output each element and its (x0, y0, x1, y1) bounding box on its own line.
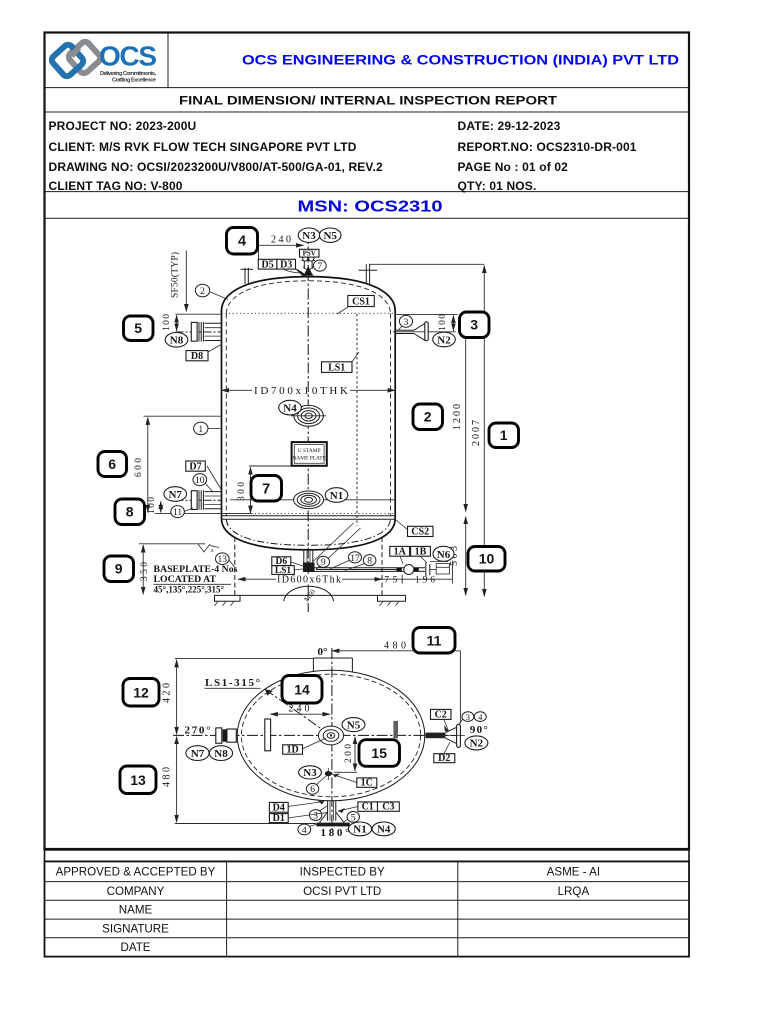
svg-text:2: 2 (200, 287, 205, 297)
svg-text:LS1: LS1 (275, 566, 292, 576)
svg-text:9: 9 (321, 558, 326, 568)
svg-text:DRAWING NO: OCSI/2023200U/V800: DRAWING NO: OCSI/2023200U/V800/AT-500/GA… (49, 160, 383, 174)
svg-text:D1: D1 (273, 813, 285, 824)
svg-text:480: 480 (162, 767, 173, 787)
svg-text:4: 4 (478, 712, 483, 722)
svg-text:3: 3 (470, 317, 478, 333)
svg-text:6: 6 (310, 785, 315, 795)
svg-text:420: 420 (162, 683, 173, 703)
svg-text:12: 12 (133, 685, 149, 701)
svg-text:N2: N2 (470, 738, 484, 750)
svg-text:14: 14 (294, 682, 310, 698)
svg-text:APPROVED & ACCEPTED BY: APPROVED & ACCEPTED BY (56, 866, 216, 879)
svg-text:MSN: OCS2310: MSN: OCS2310 (298, 199, 443, 216)
svg-text:7: 7 (317, 262, 322, 272)
svg-text:QTY: 01 NOS.: QTY: 01 NOS. (458, 179, 537, 193)
svg-text:CS2: CS2 (411, 527, 429, 538)
svg-text:1B: 1B (415, 546, 427, 557)
svg-text:3: 3 (404, 318, 409, 328)
svg-text:4: 4 (302, 826, 307, 836)
svg-text:480: 480 (384, 640, 406, 651)
svg-text:N8: N8 (214, 748, 228, 760)
svg-text:N3: N3 (302, 230, 316, 242)
svg-text:Crafting Excellence: Crafting Excellence (112, 78, 156, 84)
svg-text:300: 300 (237, 482, 247, 501)
svg-text:N1: N1 (353, 824, 366, 836)
svg-text:8: 8 (126, 504, 134, 520)
svg-text:9: 9 (115, 561, 123, 577)
svg-text:0°: 0° (318, 646, 328, 658)
svg-text:REPORT.NO: OCS2310-DR-001: REPORT.NO: OCS2310-DR-001 (458, 140, 637, 154)
svg-text:D5: D5 (261, 259, 273, 270)
svg-text:OCSI PVT LTD: OCSI PVT LTD (303, 885, 381, 898)
svg-text:5: 5 (351, 813, 356, 823)
svg-text:NAME: NAME (119, 904, 153, 917)
svg-text:45°,135°,225°,315°: 45°,135°,225°,315° (154, 585, 225, 595)
svg-text:LRQA: LRQA (558, 885, 590, 898)
svg-text:1A: 1A (394, 546, 407, 557)
svg-text:N4: N4 (377, 824, 391, 836)
svg-text:100: 100 (438, 314, 448, 331)
svg-text:N1: N1 (330, 490, 343, 502)
svg-text:100: 100 (162, 314, 172, 331)
svg-text:NAME PLATE: NAME PLATE (293, 456, 327, 462)
svg-text:6: 6 (108, 456, 116, 472)
svg-text:LOCATED AT: LOCATED AT (154, 574, 217, 585)
svg-text:N6: N6 (437, 549, 451, 561)
svg-text:17: 17 (350, 554, 360, 564)
svg-text:600: 600 (134, 458, 144, 477)
svg-text:FINAL DIMENSION/ INTERNAL INSP: FINAL DIMENSION/ INTERNAL INSPECTION REP… (179, 94, 558, 108)
svg-text:N4: N4 (283, 402, 297, 414)
svg-text:2: 2 (424, 409, 432, 425)
svg-text:1: 1 (500, 427, 508, 443)
svg-text:350: 350 (140, 562, 150, 581)
svg-text:N7: N7 (191, 748, 205, 760)
svg-text:OCS ENGINEERING & CONSTRUCTION: OCS ENGINEERING & CONSTRUCTION (INDIA) P… (242, 52, 679, 68)
svg-text:C3: C3 (382, 802, 394, 813)
svg-text:11: 11 (427, 632, 442, 648)
svg-text:4: 4 (238, 234, 246, 250)
svg-text:13: 13 (130, 772, 146, 788)
svg-text:COMPANY: COMPANY (107, 885, 165, 898)
svg-text:C2: C2 (435, 710, 447, 721)
svg-text:240: 240 (271, 235, 291, 246)
svg-text:N2: N2 (437, 334, 451, 346)
svg-text:PAGE No : 01 of 02: PAGE No : 01 of 02 (458, 160, 569, 174)
svg-text:C1: C1 (362, 802, 374, 813)
svg-text:1: 1 (198, 425, 203, 435)
svg-text:3: 3 (466, 712, 470, 722)
svg-text:13: 13 (218, 555, 228, 565)
svg-text:SIGNATURE: SIGNATURE (102, 922, 169, 935)
svg-text:Delivering Commitments,: Delivering Commitments, (100, 71, 156, 77)
svg-text:D4: D4 (273, 802, 285, 813)
svg-text:PROJECT NO: 2023-200U: PROJECT NO: 2023-200U (49, 119, 197, 133)
svg-text:90°: 90° (470, 724, 488, 736)
svg-text:D7: D7 (189, 461, 201, 472)
svg-text:INSPECTED BY: INSPECTED BY (300, 866, 385, 879)
svg-text:11: 11 (173, 508, 182, 518)
svg-text:LS1-315°: LS1-315° (205, 677, 260, 689)
svg-text:LS1: LS1 (328, 362, 345, 373)
svg-text:CLIENT: M/S RVK FLOW TECH SING: CLIENT: M/S RVK FLOW TECH SINGAPORE PVT … (49, 140, 357, 154)
svg-text:N7: N7 (168, 489, 182, 501)
svg-text:10: 10 (195, 476, 205, 486)
svg-text:ASME - AI: ASME - AI (547, 866, 600, 879)
svg-text:DATE: 29-12-2023: DATE: 29-12-2023 (458, 119, 561, 133)
svg-text:1D: 1D (286, 745, 298, 756)
svg-text:100: 100 (147, 497, 157, 514)
svg-text:240: 240 (289, 704, 310, 715)
svg-text:8: 8 (367, 557, 372, 567)
svg-text:PSV: PSV (303, 250, 316, 258)
svg-text:5: 5 (134, 320, 142, 336)
svg-text:SF50(TYP): SF50(TYP) (170, 252, 181, 298)
svg-text:N5: N5 (347, 719, 361, 731)
svg-text:3: 3 (313, 811, 318, 821)
svg-text:CS1: CS1 (352, 296, 370, 307)
svg-text:200: 200 (344, 744, 354, 763)
svg-text:OCS: OCS (99, 41, 156, 72)
svg-text:D8: D8 (191, 351, 203, 362)
svg-text:CLIENT TAG NO: V-800: CLIENT TAG NO: V-800 (49, 179, 183, 193)
svg-text:D3: D3 (280, 259, 292, 270)
svg-text:DATE: DATE (120, 941, 150, 954)
svg-text:N5: N5 (323, 230, 337, 242)
svg-text:1C: 1C (361, 778, 373, 789)
svg-text:15: 15 (371, 745, 387, 761)
svg-text:N8: N8 (170, 335, 184, 347)
svg-text:196: 196 (415, 576, 435, 586)
svg-text:10: 10 (479, 551, 495, 567)
svg-text:ID600x6Thk: ID600x6Thk (277, 574, 341, 585)
svg-text:U STAMP: U STAMP (298, 448, 321, 454)
svg-text:D2: D2 (438, 753, 450, 764)
svg-text:7: 7 (262, 482, 270, 498)
svg-text:N3: N3 (303, 767, 317, 779)
